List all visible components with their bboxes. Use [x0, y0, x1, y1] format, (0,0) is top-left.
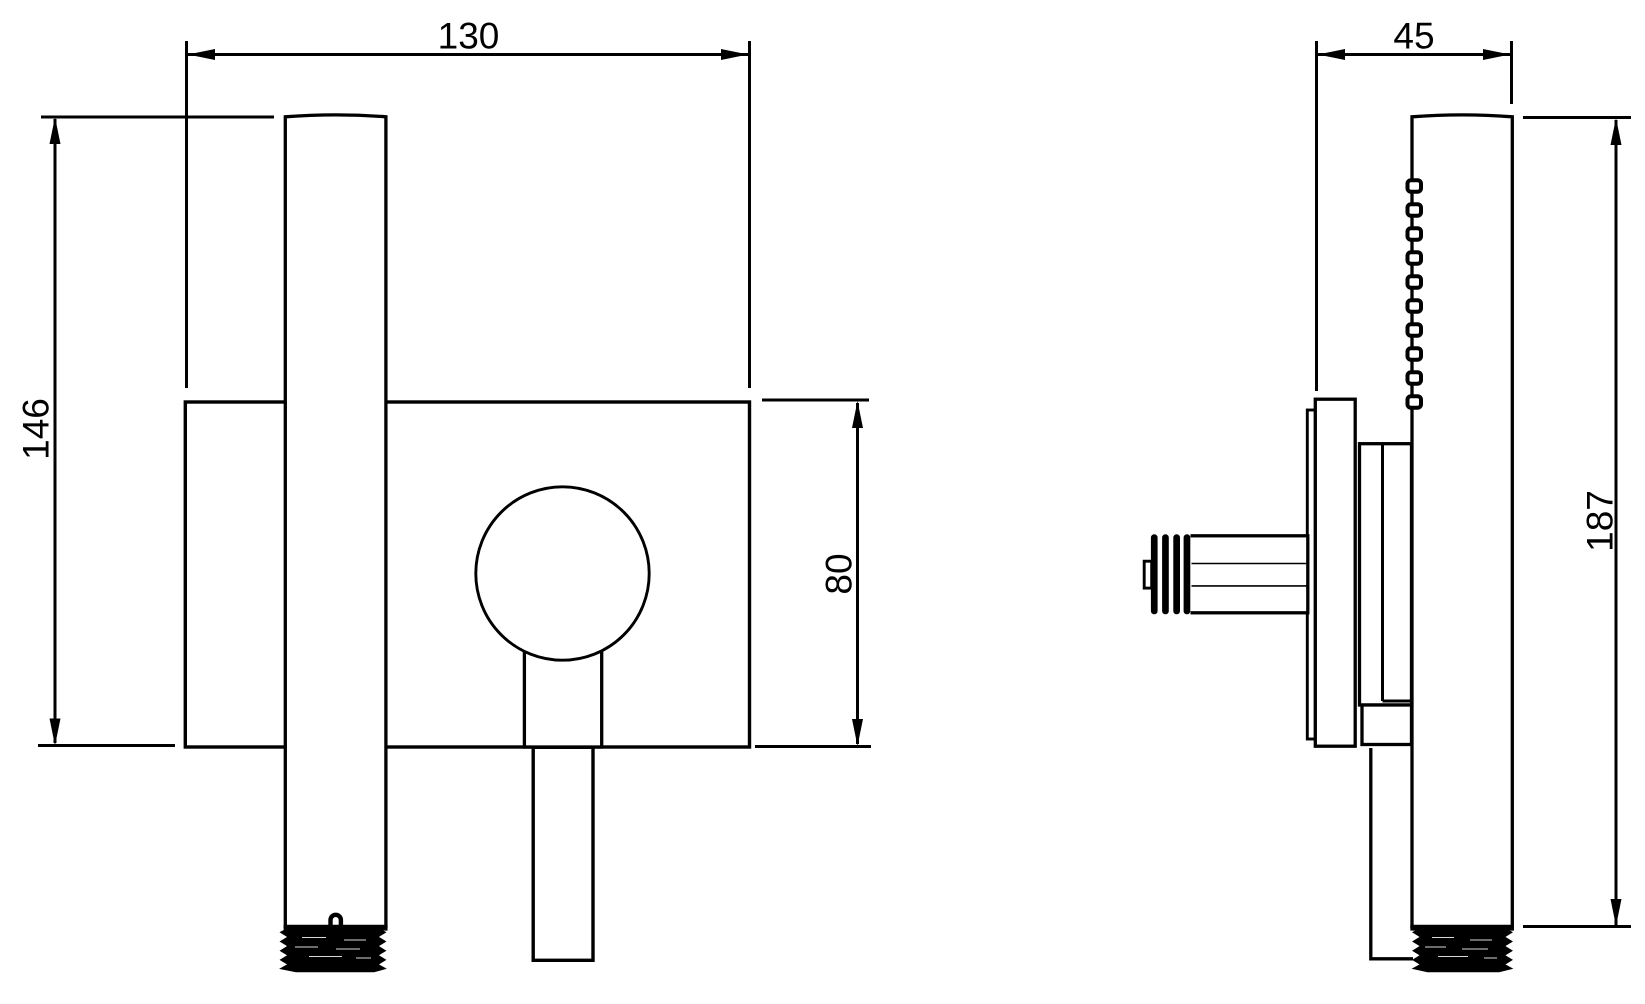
svg-text:146: 146 — [16, 398, 57, 460]
svg-text:45: 45 — [1393, 16, 1434, 57]
svg-text:80: 80 — [819, 553, 860, 594]
svg-text:130: 130 — [438, 16, 500, 57]
svg-text:187: 187 — [1580, 490, 1621, 552]
